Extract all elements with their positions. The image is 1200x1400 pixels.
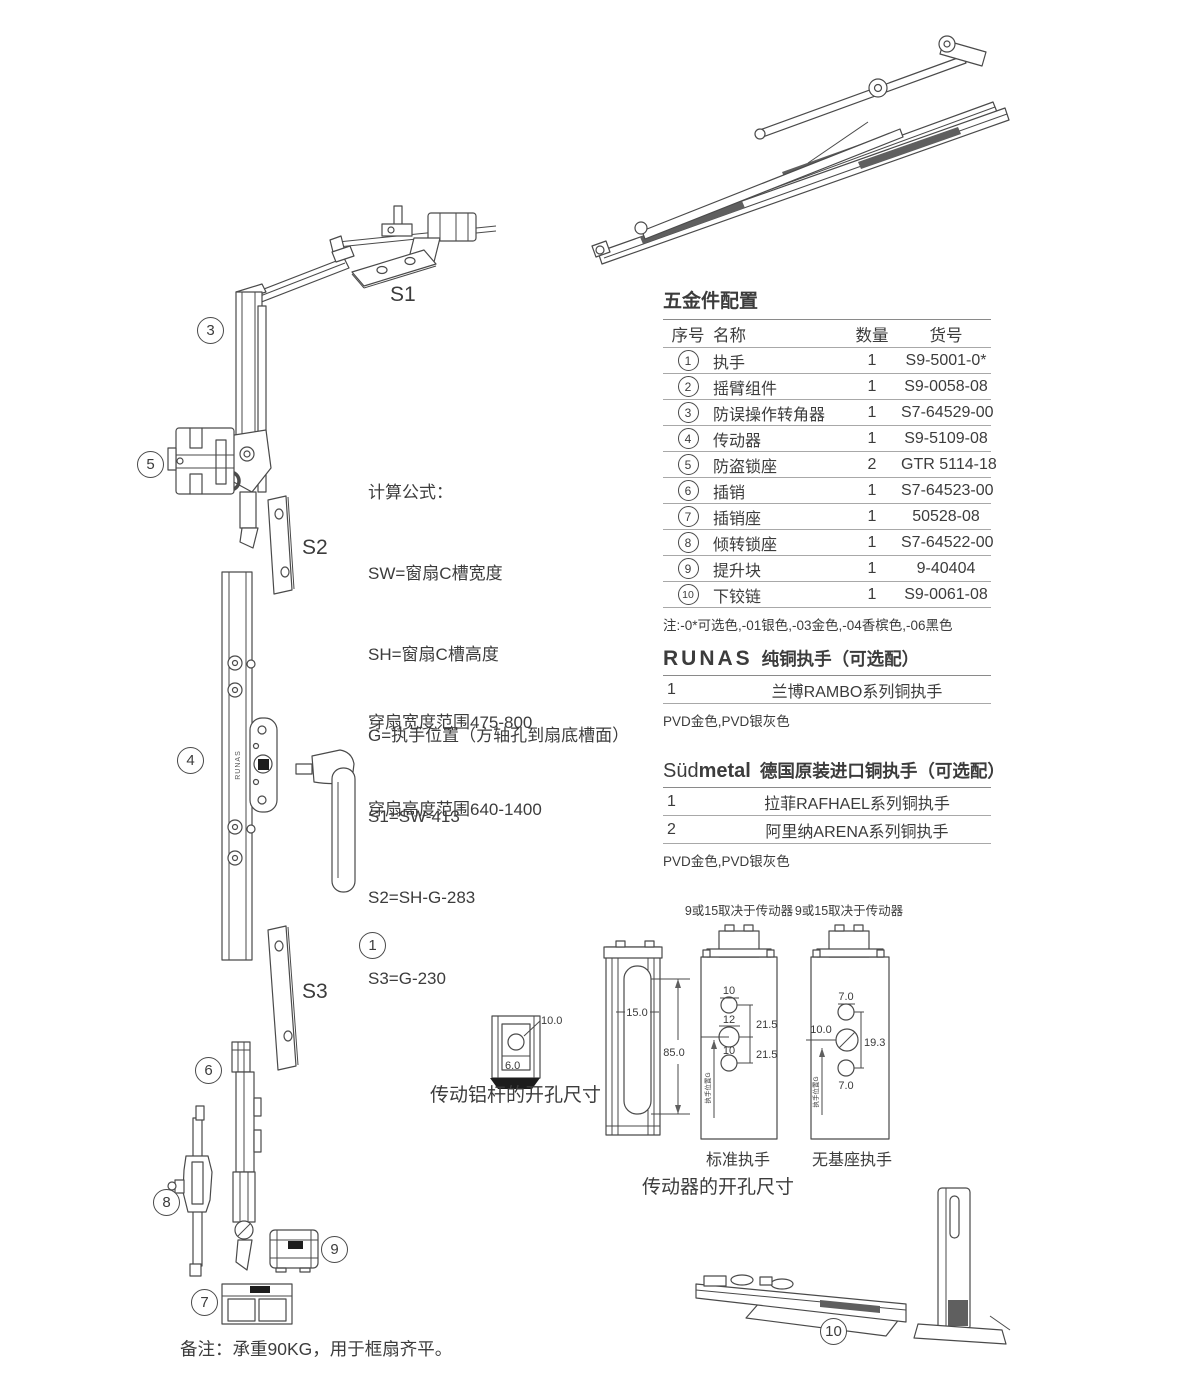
bar-brand-text: RUNAS — [235, 750, 242, 780]
callout-6: 6 — [195, 1057, 222, 1084]
formula-s2: S2=SH-G-283 — [368, 884, 629, 911]
hardware-spec-sheet: RUNAS — [0, 0, 1200, 1400]
table-row: 5 防盗锁座 2 GTR 5114-18 — [663, 452, 991, 478]
sash-height-range: 穿扇高度范围640-1400 — [368, 795, 542, 824]
part-drive-bar: RUNAS — [222, 572, 277, 960]
part-bottom-hinge — [696, 1188, 1010, 1344]
header-name: 名称 — [713, 322, 843, 346]
row-code: 50528-08 — [901, 508, 991, 526]
row-name: 插销 — [713, 479, 843, 503]
row-code: 9-40404 — [901, 560, 991, 578]
row-name: 提升块 — [713, 557, 843, 581]
row-name: 执手 — [713, 349, 843, 373]
sudmetal-option-header: Südmetal 德国原装进口铜执手（可选配） — [663, 758, 991, 788]
formula-title: 计算公式： — [368, 479, 629, 506]
row-qty: 1 — [843, 508, 901, 526]
callout-3: 3 — [197, 317, 224, 344]
hardware-table: 五金件配置 序号 名称 数量 货号 1 执手 1 S9-5001-0* 2 摇臂… — [663, 286, 991, 634]
row-code: S7-64522-00 — [901, 534, 991, 552]
row-name: 倾转锁座 — [713, 531, 843, 555]
std-span-bot: 21.5 — [756, 1049, 777, 1061]
row-no: 2 — [678, 376, 699, 397]
sudmetal-row: 1 拉菲RAFHAEL系列铜执手 — [663, 788, 991, 816]
sudmetal-brand: Südmetal — [663, 760, 751, 783]
part-swing-arm-assembly — [330, 36, 1009, 264]
part-lock-keeper — [168, 428, 234, 494]
standard-handle-caption: 标准执手 — [706, 1146, 770, 1170]
sash-width-range: 穿扇宽度范围475-800 — [368, 708, 542, 737]
part-bolt-keeper — [222, 1284, 292, 1324]
row-no: 3 — [678, 402, 699, 423]
std-dim-bot: 10 — [723, 1045, 735, 1057]
row-qty: 1 — [843, 352, 901, 370]
runas-finish-note: PVD金色,PVD银灰色 — [663, 704, 991, 730]
sudmetal-title: 德国原装进口铜执手（可选配） — [760, 758, 1005, 783]
sudmetal-row-no: 2 — [663, 821, 723, 839]
profile-slot-width: 15.0 — [626, 1007, 647, 1019]
runas-title: 纯铜执手（可选配） — [762, 646, 920, 671]
callout-9: 9 — [321, 1236, 348, 1263]
part-handle — [296, 750, 355, 892]
std-span-top: 21.5 — [756, 1019, 777, 1031]
row-name: 防误操作转角器 — [713, 401, 843, 425]
row-qty: 1 — [843, 534, 901, 552]
label-s2: S2 — [302, 536, 328, 560]
table-row: 7 插销座 1 50528-08 — [663, 504, 991, 530]
part-lift-block — [270, 1230, 318, 1272]
label-s3: S3 — [302, 980, 328, 1004]
sudmetal-row-name: 拉菲RAFHAEL系列铜执手 — [723, 790, 991, 814]
hardware-table-title: 五金件配置 — [663, 286, 991, 320]
nb-side-label: 执手位置G — [811, 1076, 820, 1107]
runas-row-no: 1 — [663, 681, 723, 699]
table-row: 1 执手 1 S9-5001-0* — [663, 348, 991, 374]
alu-rod-caption: 传动铝杆的开孔尺寸 — [430, 1080, 601, 1107]
callout-4: 4 — [177, 747, 204, 774]
row-no: 6 — [678, 480, 699, 501]
label-s1: S1 — [390, 283, 416, 307]
runas-brand: RUNAS — [663, 647, 753, 671]
row-no: 8 — [678, 532, 699, 553]
callout-5: 5 — [137, 451, 164, 478]
row-no: 7 — [678, 506, 699, 527]
runas-option-header: RUNAS 纯铜执手（可选配） — [663, 646, 991, 676]
nb-dim-top: 7.0 — [838, 991, 853, 1003]
table-row: 8 倾转锁座 1 S7-64522-00 — [663, 530, 991, 556]
table-row: 3 防误操作转角器 1 S7-64529-00 — [663, 400, 991, 426]
nb-dim-right: 19.3 — [864, 1037, 885, 1049]
row-qty: 1 — [843, 430, 901, 448]
row-name: 摇臂组件 — [713, 375, 843, 399]
row-name: 传动器 — [713, 427, 843, 451]
table-row: 9 提升块 1 9-40404 — [663, 556, 991, 582]
row-qty: 1 — [843, 560, 901, 578]
row-qty: 1 — [843, 404, 901, 422]
runas-option-section: RUNAS 纯铜执手（可选配） 1 兰博RAMBO系列铜执手 PVD金色,PVD… — [663, 646, 991, 730]
row-code: S9-5109-08 — [901, 430, 991, 448]
row-no: 10 — [678, 584, 699, 605]
color-option-note: 注:-0*可选色,-01银色,-03金色,-04香槟色,-06黑色 — [663, 608, 991, 634]
no-base-driver-header: 9或15取决于传动器 — [784, 900, 914, 919]
plate-s2 — [268, 496, 294, 594]
sudmetal-finish-note: PVD金色,PVD银灰色 — [663, 844, 991, 870]
profile-slot-height: 85.0 — [663, 1047, 684, 1059]
row-code: S9-0061-08 — [901, 586, 991, 604]
sudmetal-row: 2 阿里纳ARENA系列铜执手 — [663, 816, 991, 844]
runas-row-name: 兰博RAMBO系列铜执手 — [723, 678, 991, 702]
std-dim-top: 10 — [723, 985, 735, 997]
table-row: 6 插销 1 S7-64523-00 — [663, 478, 991, 504]
row-code: GTR 5114-18 — [901, 456, 991, 474]
formula-sw: SW=窗扇C槽宽度 — [368, 560, 629, 587]
table-row: 2 摇臂组件 1 S9-0058-08 — [663, 374, 991, 400]
formula-s3: S3=G-230 — [368, 965, 629, 992]
std-side-label: 执手位置G — [703, 1072, 712, 1103]
header-qty: 数量 — [843, 322, 901, 346]
row-name: 防盗锁座 — [713, 453, 843, 477]
row-qty: 1 — [843, 586, 901, 604]
row-no: 4 — [678, 428, 699, 449]
row-name: 下铰链 — [713, 583, 843, 607]
header-no: 序号 — [663, 322, 713, 346]
row-name: 插销座 — [713, 505, 843, 529]
plate-s3 — [268, 926, 298, 1070]
row-code: S9-0058-08 — [901, 378, 991, 396]
part-corner-drive — [221, 246, 354, 548]
no-base-handle-caption: 无基座执手 — [812, 1146, 892, 1170]
row-qty: 1 — [843, 378, 901, 396]
nb-dim-left: 10.0 — [810, 1024, 831, 1036]
row-qty: 1 — [843, 482, 901, 500]
callout-7: 7 — [191, 1289, 218, 1316]
driver-holes-caption: 传动器的开孔尺寸 — [642, 1172, 794, 1199]
row-no: 5 — [678, 454, 699, 475]
row-no: 9 — [678, 558, 699, 579]
drawing-standard-handle: 10 12 10 21.5 21.5 执手位置G — [701, 925, 777, 1139]
std-dim-mid: 12 — [723, 1014, 735, 1026]
table-row: 4 传动器 1 S9-5109-08 — [663, 426, 991, 452]
alu-dim-bottom: 6.0 — [505, 1060, 520, 1072]
callout-8: 8 — [153, 1189, 180, 1216]
runas-row: 1 兰博RAMBO系列铜执手 — [663, 676, 991, 704]
row-no: 1 — [678, 350, 699, 371]
header-code: 货号 — [901, 322, 991, 346]
row-code: S9-5001-0* — [901, 352, 991, 370]
drawing-no-base-handle: 7.0 10.0 19.3 7.0 执手位置G — [806, 925, 889, 1139]
row-code: S7-64523-00 — [901, 482, 991, 500]
table-row: 10 下铰链 1 S9-0061-08 — [663, 582, 991, 608]
hardware-table-header: 序号 名称 数量 货号 — [663, 320, 991, 348]
nb-dim-bot: 7.0 — [838, 1080, 853, 1092]
row-code: S7-64529-00 — [901, 404, 991, 422]
sash-range-block: 穿扇宽度范围475-800 穿扇高度范围640-1400 — [368, 650, 542, 882]
load-capacity-footnote: 备注：承重90KG，用于框扇齐平。 — [180, 1336, 452, 1361]
sudmetal-row-name: 阿里纳ARENA系列铜执手 — [723, 818, 991, 842]
row-qty: 2 — [843, 456, 901, 474]
callout-10: 10 — [820, 1318, 847, 1345]
part-bolt — [232, 1042, 261, 1270]
sudmetal-row-no: 1 — [663, 793, 723, 811]
sudmetal-option-section: Südmetal 德国原装进口铜执手（可选配） 1 拉菲RAFHAEL系列铜执手… — [663, 758, 991, 870]
